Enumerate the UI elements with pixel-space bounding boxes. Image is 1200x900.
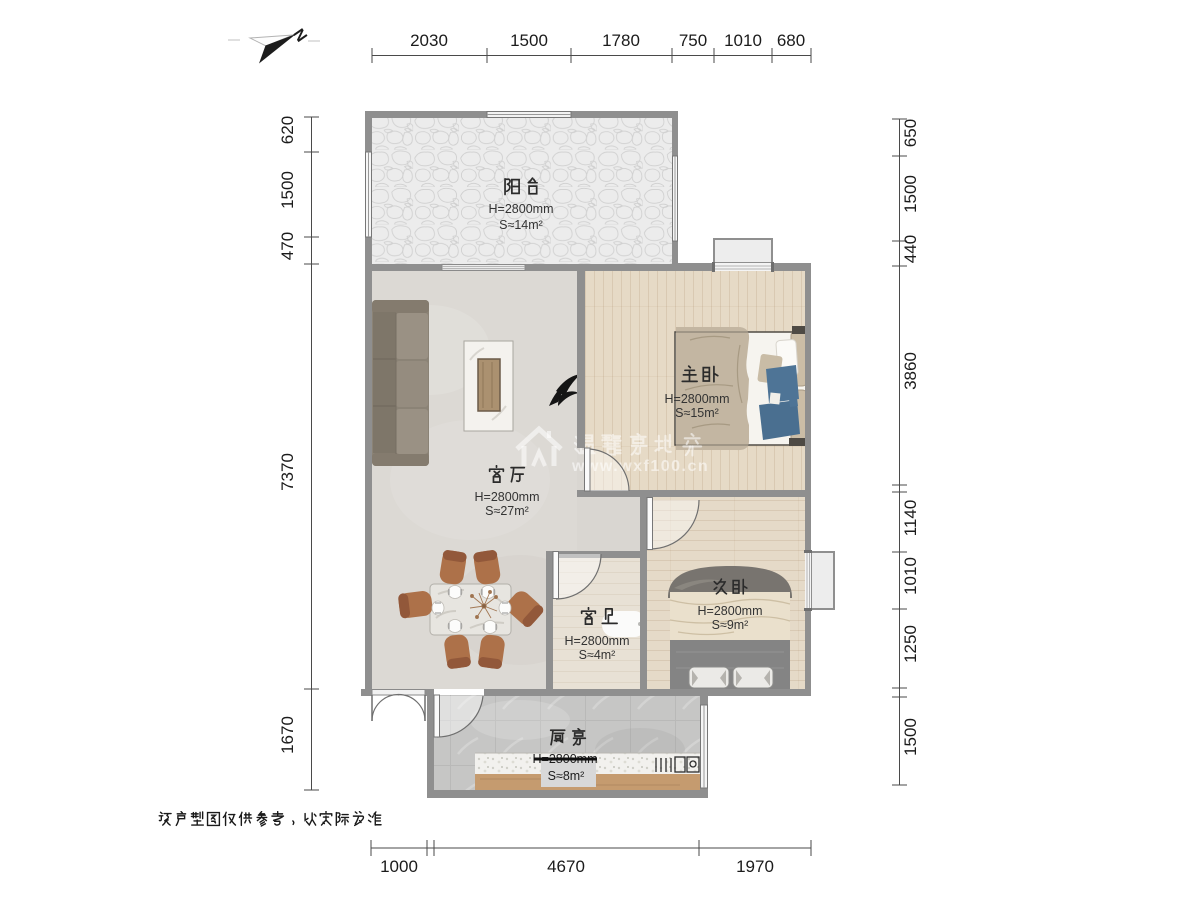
svg-text:750: 750	[679, 31, 707, 50]
svg-text:2030: 2030	[410, 31, 448, 50]
svg-text:680: 680	[777, 31, 805, 50]
svg-text:650: 650	[901, 119, 920, 147]
svg-text:1500: 1500	[901, 175, 920, 213]
svg-text:1670: 1670	[278, 716, 297, 754]
svg-text:1970: 1970	[736, 857, 774, 876]
svg-text:1500: 1500	[901, 718, 920, 756]
svg-text:S≈8m²: S≈8m²	[548, 769, 585, 783]
svg-text:N: N	[289, 26, 310, 45]
svg-text:S≈27m²: S≈27m²	[485, 504, 529, 518]
svg-text:4670: 4670	[547, 857, 585, 876]
svg-text:1500: 1500	[278, 171, 297, 209]
svg-text:1250: 1250	[901, 625, 920, 663]
svg-text:S≈15m²: S≈15m²	[675, 406, 719, 420]
svg-text:3860: 3860	[901, 352, 920, 390]
svg-text:S≈14m²: S≈14m²	[499, 218, 543, 232]
svg-text:1140: 1140	[901, 500, 920, 537]
svg-text:1000: 1000	[380, 857, 418, 876]
svg-text:470: 470	[278, 232, 297, 260]
svg-text:1010: 1010	[901, 557, 920, 595]
svg-text:H=2800mm: H=2800mm	[698, 604, 763, 618]
svg-text:440: 440	[901, 235, 920, 263]
svg-text:1780: 1780	[602, 31, 640, 50]
svg-text:620: 620	[278, 116, 297, 144]
svg-text:S≈9m²: S≈9m²	[712, 618, 749, 632]
svg-text:1500: 1500	[510, 31, 548, 50]
svg-text:H=2800mm: H=2800mm	[489, 202, 554, 216]
svg-text:7370: 7370	[278, 453, 297, 491]
svg-text:S≈4m²: S≈4m²	[579, 648, 616, 662]
svg-text:H=2800mm: H=2800mm	[665, 392, 730, 406]
svg-text:H=2800mm: H=2800mm	[475, 490, 540, 504]
svg-text:1010: 1010	[724, 31, 762, 50]
svg-text:H=2800mm: H=2800mm	[565, 634, 630, 648]
